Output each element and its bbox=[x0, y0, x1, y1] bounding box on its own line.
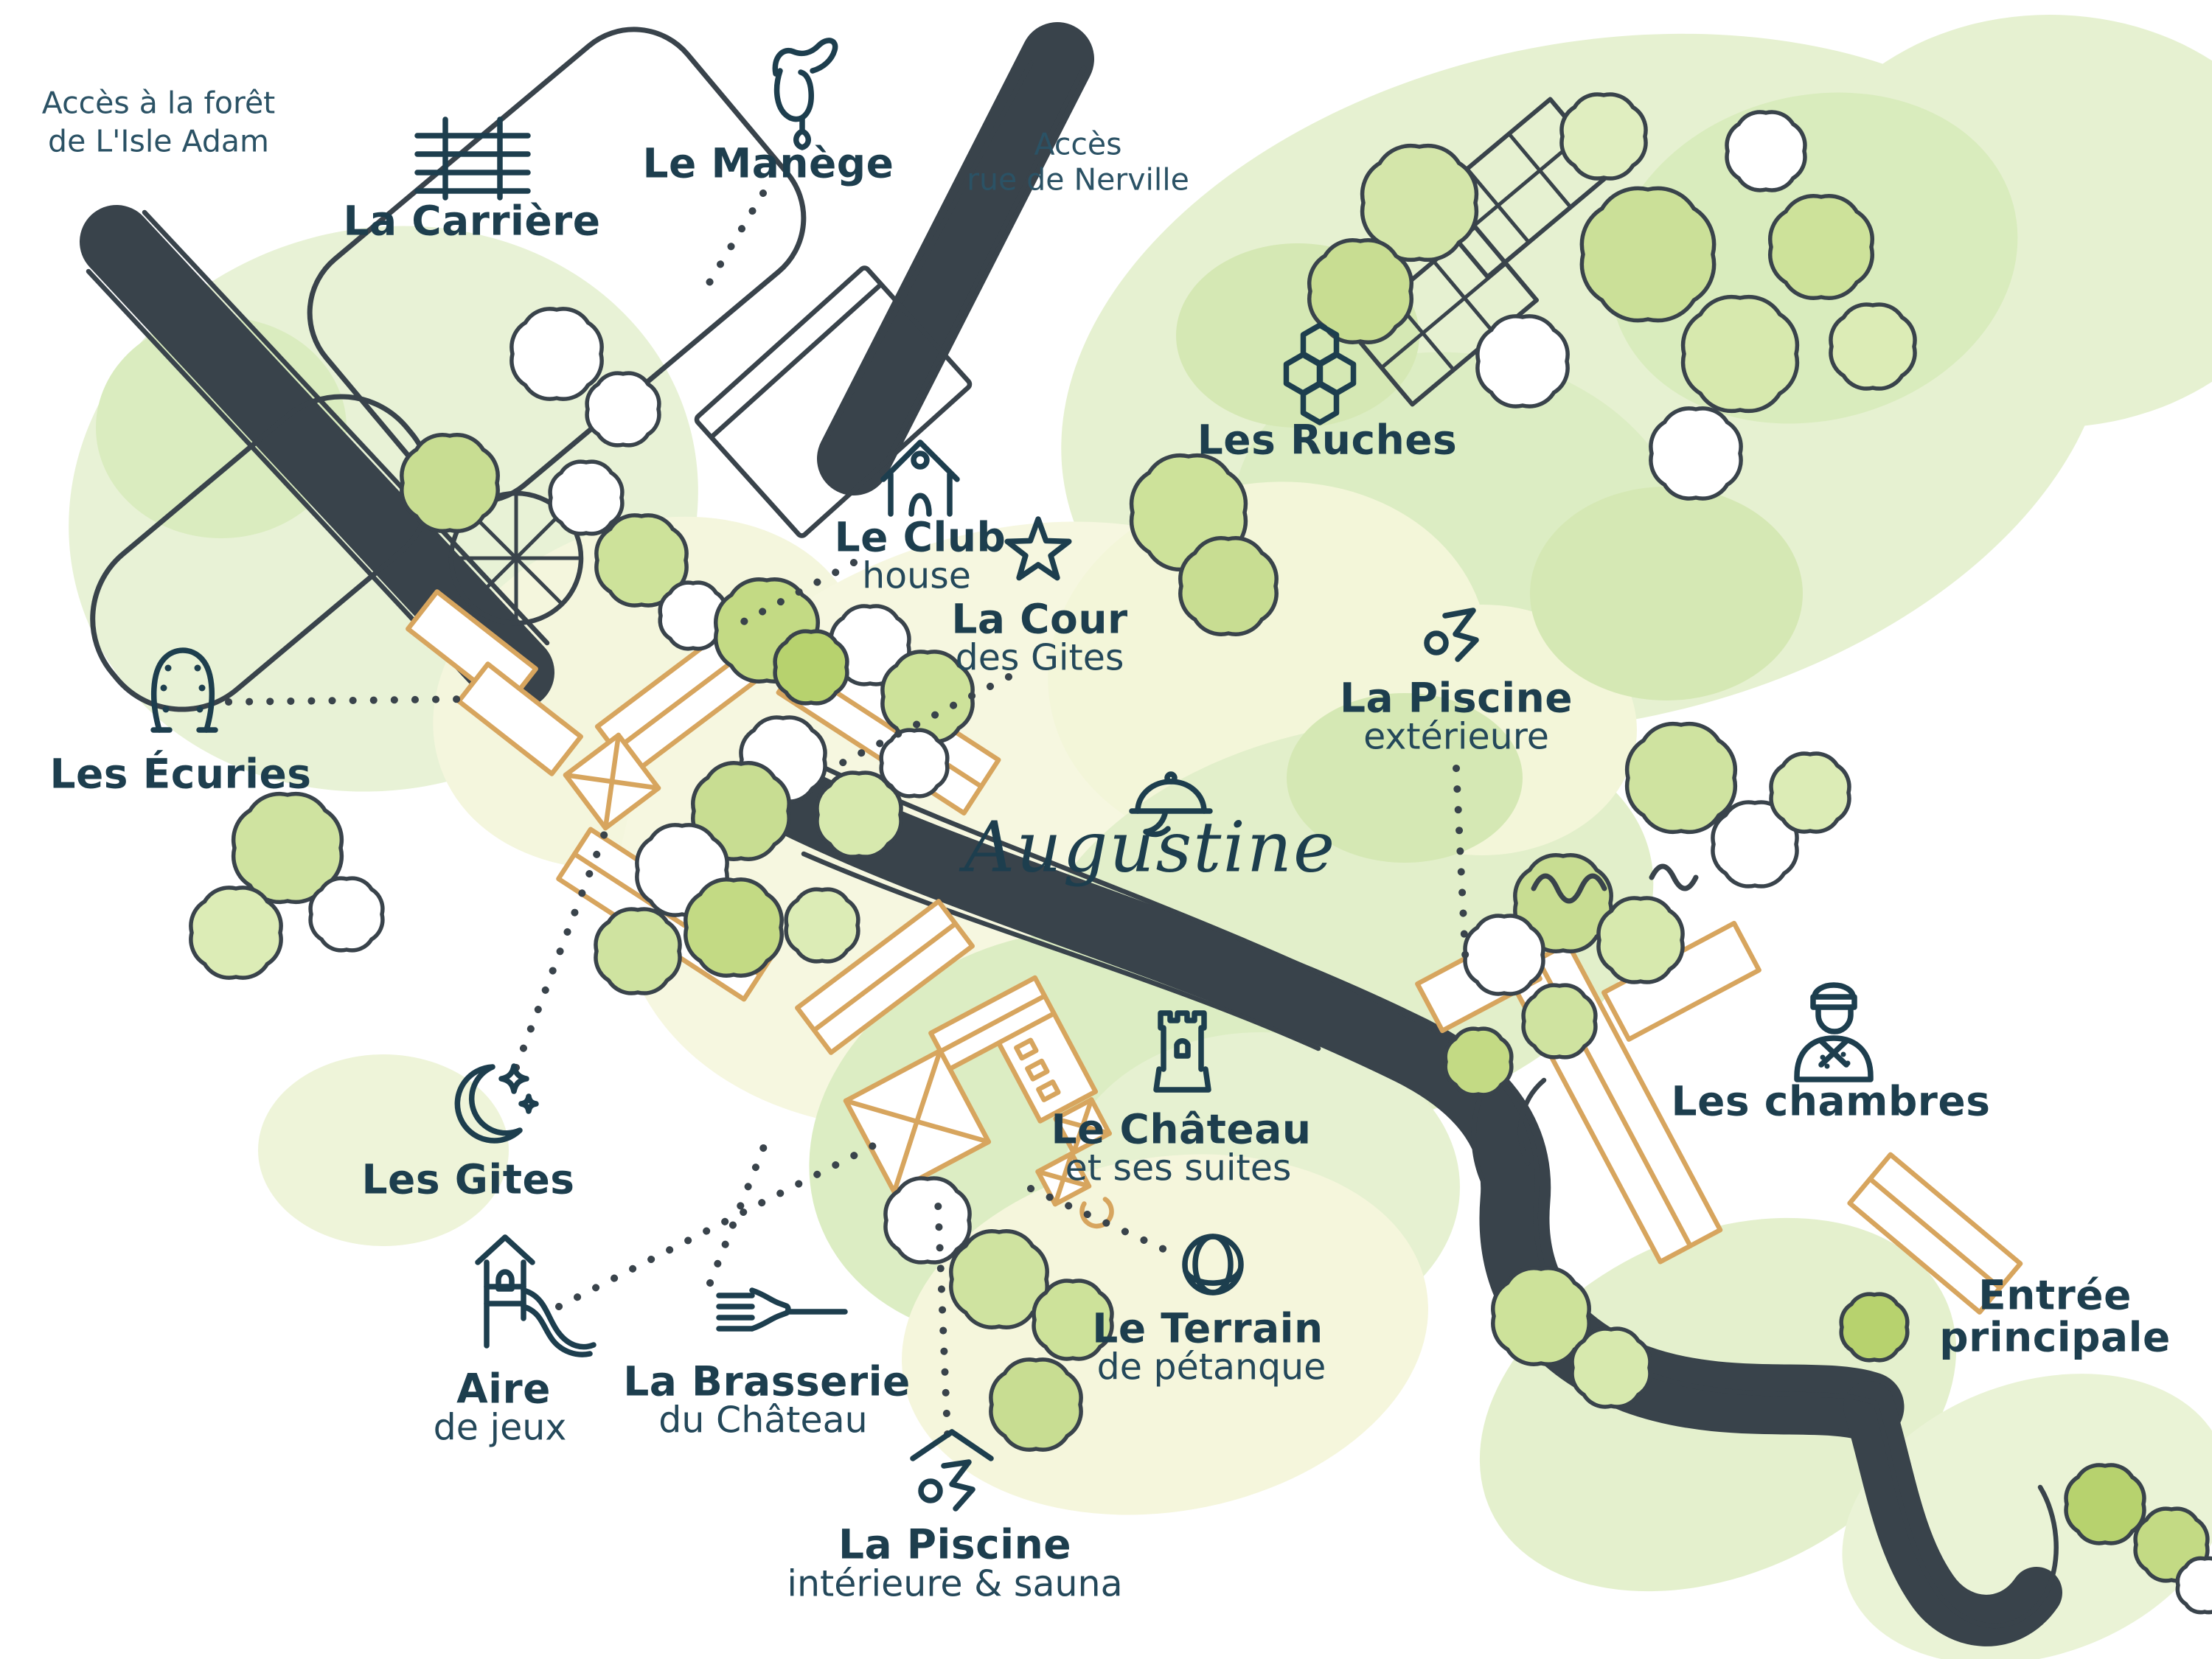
bellhop-icon bbox=[1797, 985, 1871, 1079]
piscine-interieure-sublabel: intérieure & sauna bbox=[787, 1566, 1122, 1602]
entree-principale-label-line2: principale bbox=[1939, 1318, 2171, 1358]
piscine-exterieure-sublabel: extérieure bbox=[1363, 719, 1549, 755]
carriere-label: La Carrière bbox=[343, 201, 600, 242]
club-house-label: Le Club bbox=[835, 518, 1006, 558]
ecuries-label: Les Écuries bbox=[49, 754, 311, 795]
entree-principale-label: Entrée bbox=[1978, 1276, 2132, 1316]
nerville-access-label: Accès bbox=[1034, 130, 1122, 160]
chambres-label: Les chambres bbox=[1672, 1082, 1991, 1122]
brasserie-label: La Brasserie bbox=[623, 1362, 911, 1402]
brasserie-sublabel: du Château bbox=[658, 1402, 867, 1439]
forest-access-label: Accès à la forêt bbox=[42, 88, 276, 119]
chateau-sublabel: et ses suites bbox=[1065, 1150, 1292, 1186]
cour-gites-label: La Cour bbox=[951, 599, 1127, 640]
fence-icon bbox=[417, 119, 528, 198]
saddle-icon bbox=[775, 41, 835, 147]
terrain-petanque-label: Le Terrain bbox=[1092, 1309, 1323, 1349]
ruches-label: Les Ruches bbox=[1197, 420, 1458, 461]
aire-de-jeux-sublabel: de jeux bbox=[434, 1410, 567, 1446]
fork-icon bbox=[719, 1290, 845, 1329]
chateau-label: Le Château bbox=[1051, 1110, 1312, 1150]
aire-de-jeux-label: Aire bbox=[456, 1369, 551, 1410]
terrain-petanque-sublabel: de pétanque bbox=[1097, 1349, 1326, 1385]
augustine-logo: Augustine bbox=[964, 813, 1337, 883]
piscine-interieure-label: La Piscine bbox=[838, 1525, 1071, 1565]
manege-label: Le Manège bbox=[643, 144, 894, 184]
gites-label: Les Gites bbox=[361, 1160, 574, 1200]
club-house-sublabel: house bbox=[862, 558, 971, 594]
cour-gites-sublabel: des Gites bbox=[956, 640, 1124, 676]
moon-stars-icon bbox=[457, 1066, 536, 1141]
property-map: Accès à la forêt de L'Isle Adam La Carri… bbox=[0, 0, 2212, 1659]
forest-access-label-line2: de L'Isle Adam bbox=[48, 127, 269, 157]
nerville-access-label-line2: rue de Nerville bbox=[967, 165, 1189, 195]
piscine-exterieure-label: La Piscine bbox=[1340, 678, 1573, 719]
